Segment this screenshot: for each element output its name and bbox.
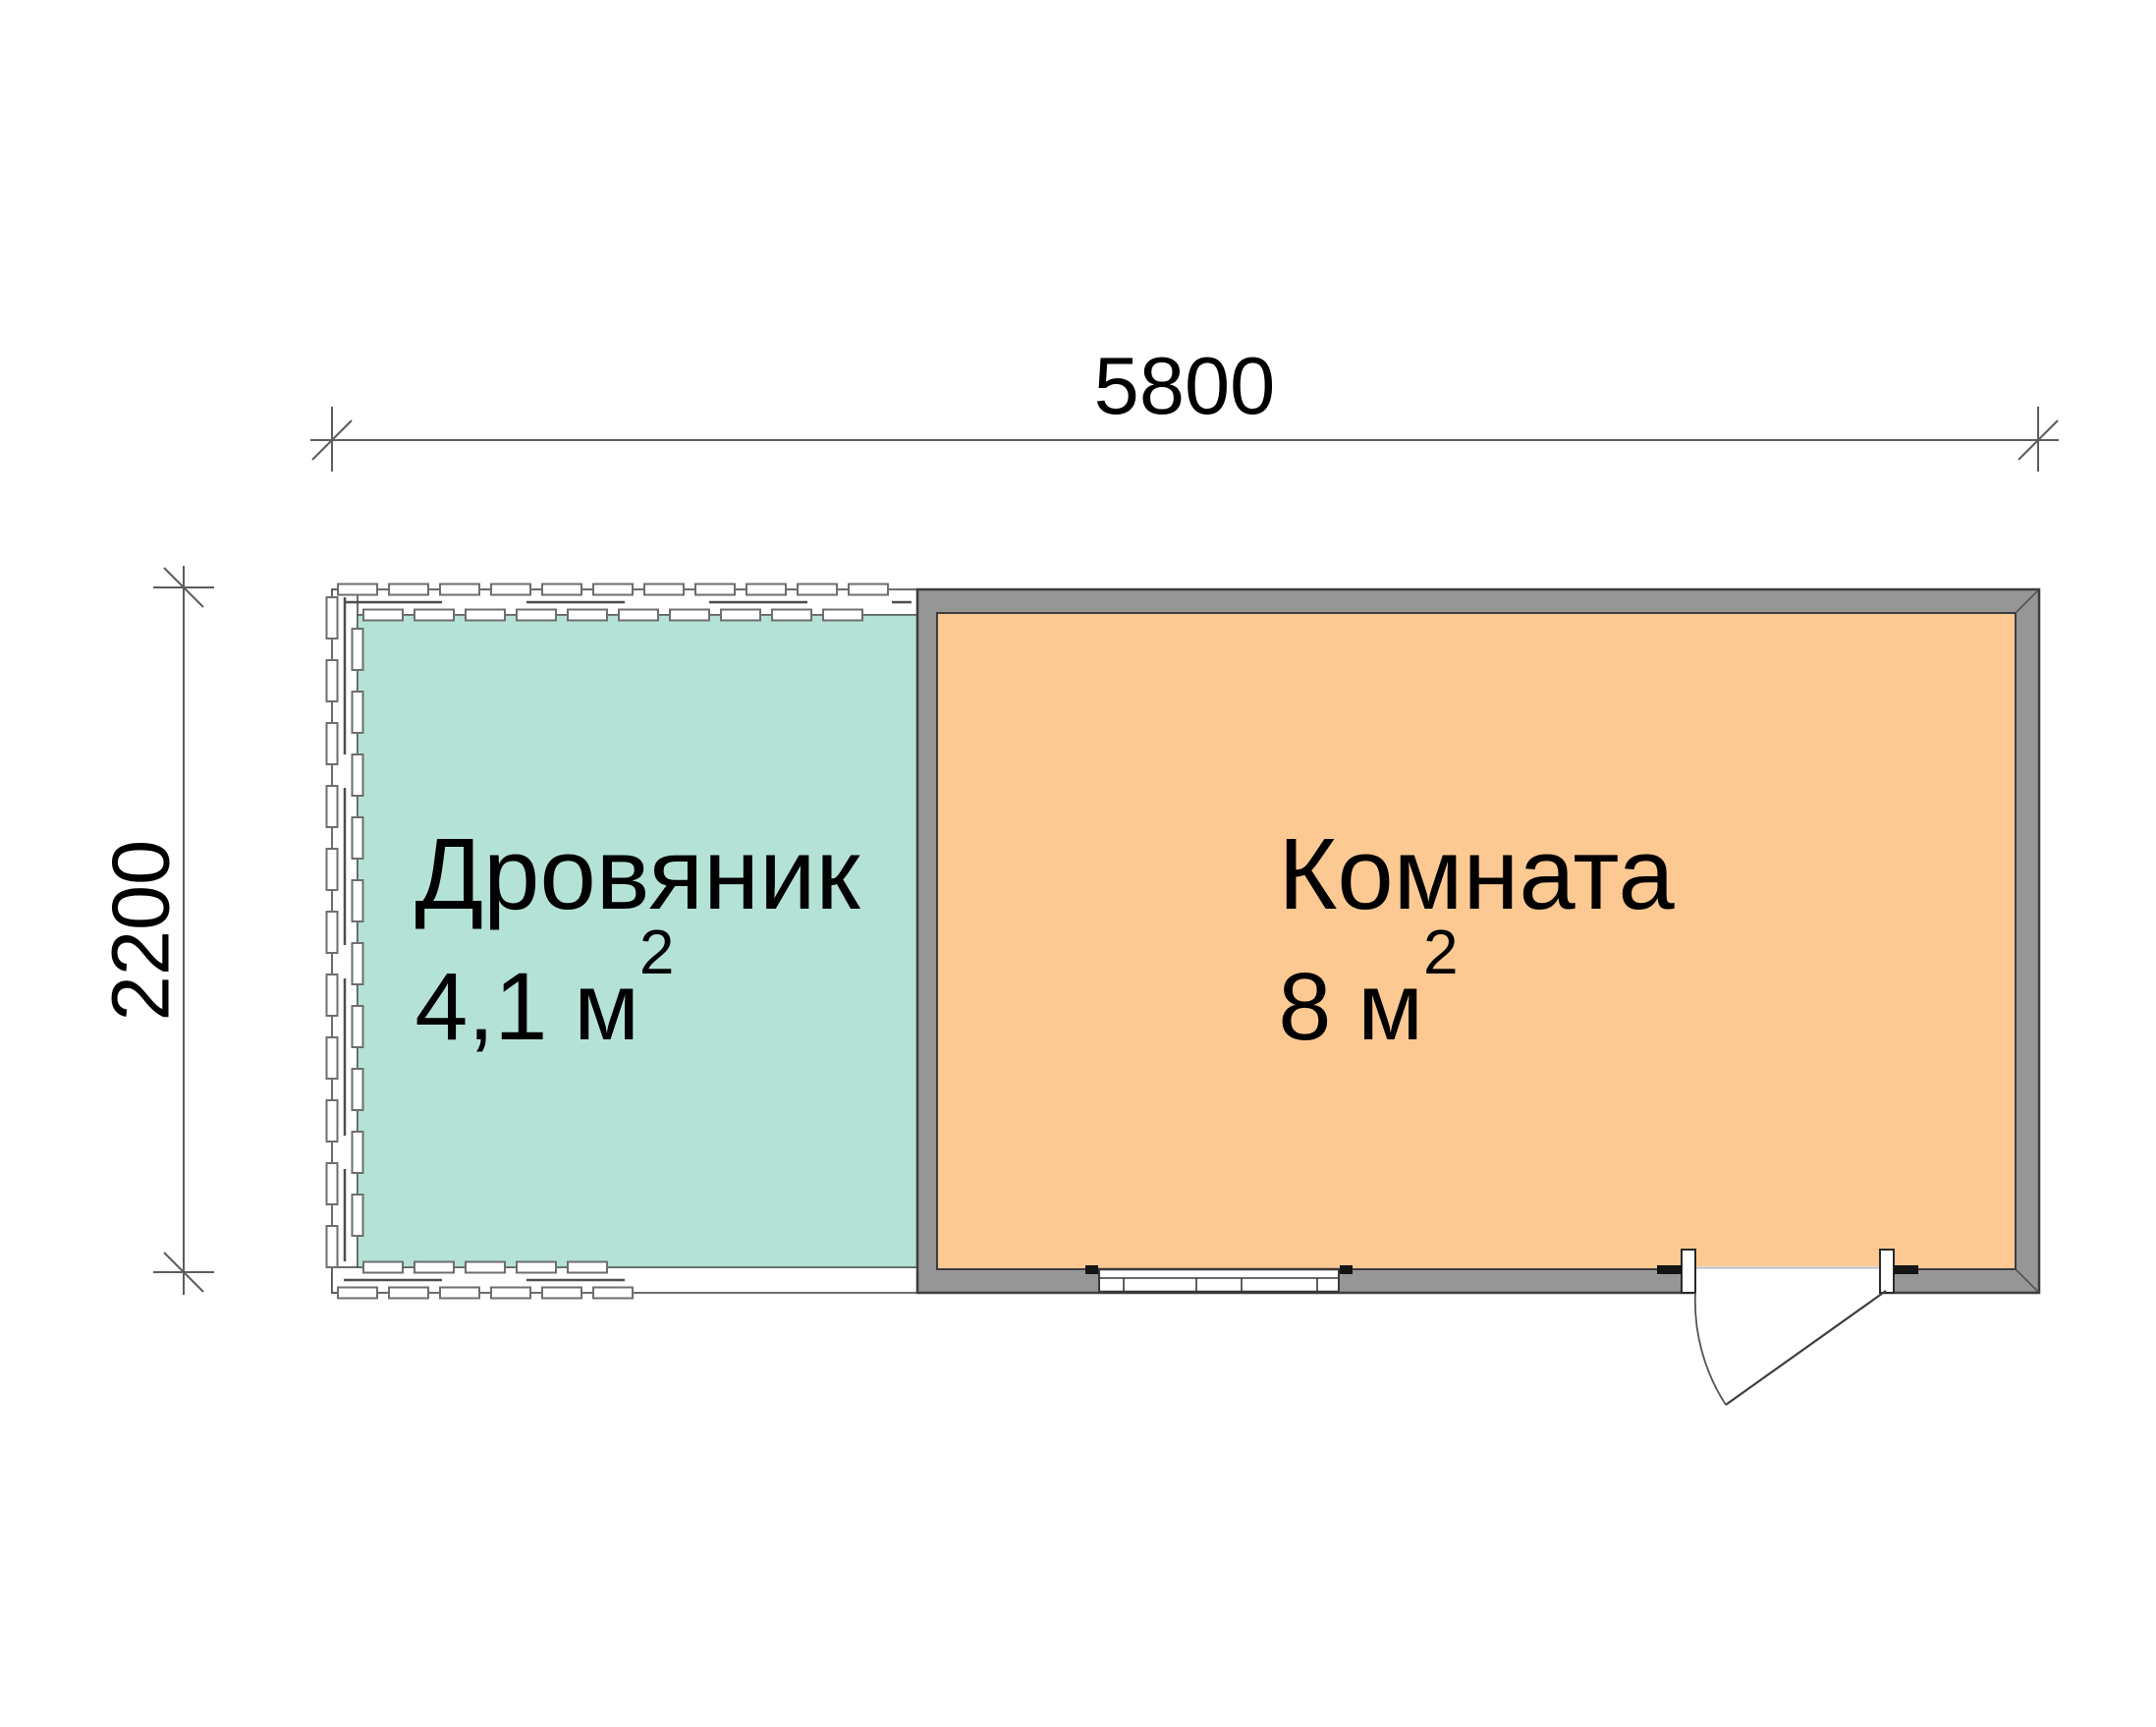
wall-plank — [415, 610, 454, 621]
wall-plank — [327, 1163, 338, 1204]
door-opening — [1695, 1266, 1880, 1296]
room-label-woodshed: Дровяник 4,1 м2 — [415, 823, 859, 1054]
wall-plank — [327, 723, 338, 764]
wall-plank — [338, 585, 377, 595]
room-label-room: Комната 8 м2 — [1278, 823, 1674, 1054]
door-lintel-mark-right — [1894, 1265, 1918, 1274]
floor-plan-canvas: 5800 2200 Дровяник 4,1 м2 Комната 8 м2 — [0, 0, 2156, 1727]
wall-plank — [491, 585, 530, 595]
wall-plank — [353, 754, 363, 796]
wall-plank — [389, 1288, 428, 1299]
wall-plank — [353, 1069, 363, 1110]
wall-plank — [353, 629, 363, 670]
wall-plank — [353, 1195, 363, 1236]
room-area-superscript: 2 — [1423, 917, 1459, 987]
wall-plank — [517, 1262, 556, 1273]
wall-plank — [415, 1262, 454, 1273]
wall-plank — [619, 610, 658, 621]
wall-plank — [568, 610, 607, 621]
window-lintel-mark-right — [1340, 1265, 1353, 1274]
wall-plank — [363, 610, 403, 621]
door-leaf — [1726, 1291, 1886, 1405]
wall-plank — [327, 1100, 338, 1142]
wall-plank — [353, 1006, 363, 1047]
wall-plank — [746, 585, 786, 595]
door-jamb-right — [1880, 1250, 1894, 1293]
wall-plank — [491, 1288, 530, 1299]
wall-plank — [695, 585, 735, 595]
room-area-room: 8 м2 — [1278, 959, 1674, 1054]
wall-plank — [327, 912, 338, 953]
dimension-label-height: 2200 — [100, 840, 182, 1022]
room-area-woodshed: 4,1 м2 — [415, 959, 859, 1054]
wall-plank — [440, 1288, 479, 1299]
wall-plank — [440, 585, 479, 595]
room-name-room: Комната — [1278, 823, 1674, 924]
door-lintel-mark-left — [1657, 1265, 1682, 1274]
door-jamb-left — [1682, 1250, 1695, 1293]
wall-plank — [517, 610, 556, 621]
wall-plank — [593, 1288, 633, 1299]
wall-plank — [798, 585, 837, 595]
dimension-label-width: 5800 — [1094, 345, 1276, 426]
floor-plan-drawing — [0, 0, 2156, 1727]
wall-plank — [466, 1262, 505, 1273]
room-area-value: 8 м — [1278, 953, 1423, 1060]
wall-plank — [353, 880, 363, 921]
wall-plank — [568, 1262, 607, 1273]
wall-plank — [593, 585, 633, 595]
wall-plank — [353, 692, 363, 733]
wall-plank — [327, 849, 338, 890]
wall-plank — [721, 610, 760, 621]
door — [1657, 1250, 1918, 1405]
wall-plank — [363, 1262, 403, 1273]
wall-plank — [353, 943, 363, 984]
wall-plank — [542, 585, 581, 595]
door-swing-arc — [1695, 1293, 1726, 1405]
wall-plank — [670, 610, 709, 621]
wall-plank — [327, 975, 338, 1016]
wall-plank — [327, 597, 338, 639]
room-area-superscript: 2 — [639, 917, 675, 987]
wall-plank — [327, 660, 338, 701]
wall-plank — [466, 610, 505, 621]
wall-plank — [772, 610, 811, 621]
wall-plank — [327, 786, 338, 827]
wall-plank — [353, 817, 363, 859]
wall-plank — [542, 1288, 581, 1299]
wall-plank — [327, 1226, 338, 1267]
room-area-value: 4,1 м — [415, 953, 638, 1060]
window-opening — [1098, 1268, 1340, 1293]
room-name-woodshed: Дровяник — [415, 823, 859, 924]
wall-plank — [327, 1037, 338, 1079]
wall-plank — [849, 585, 888, 595]
wall-plank — [644, 585, 684, 595]
wall-plank — [389, 585, 428, 595]
wall-plank — [338, 1288, 377, 1299]
wall-plank — [353, 1132, 363, 1173]
wall-plank — [823, 610, 862, 621]
window-lintel-mark-left — [1085, 1265, 1098, 1274]
window — [1085, 1265, 1353, 1293]
